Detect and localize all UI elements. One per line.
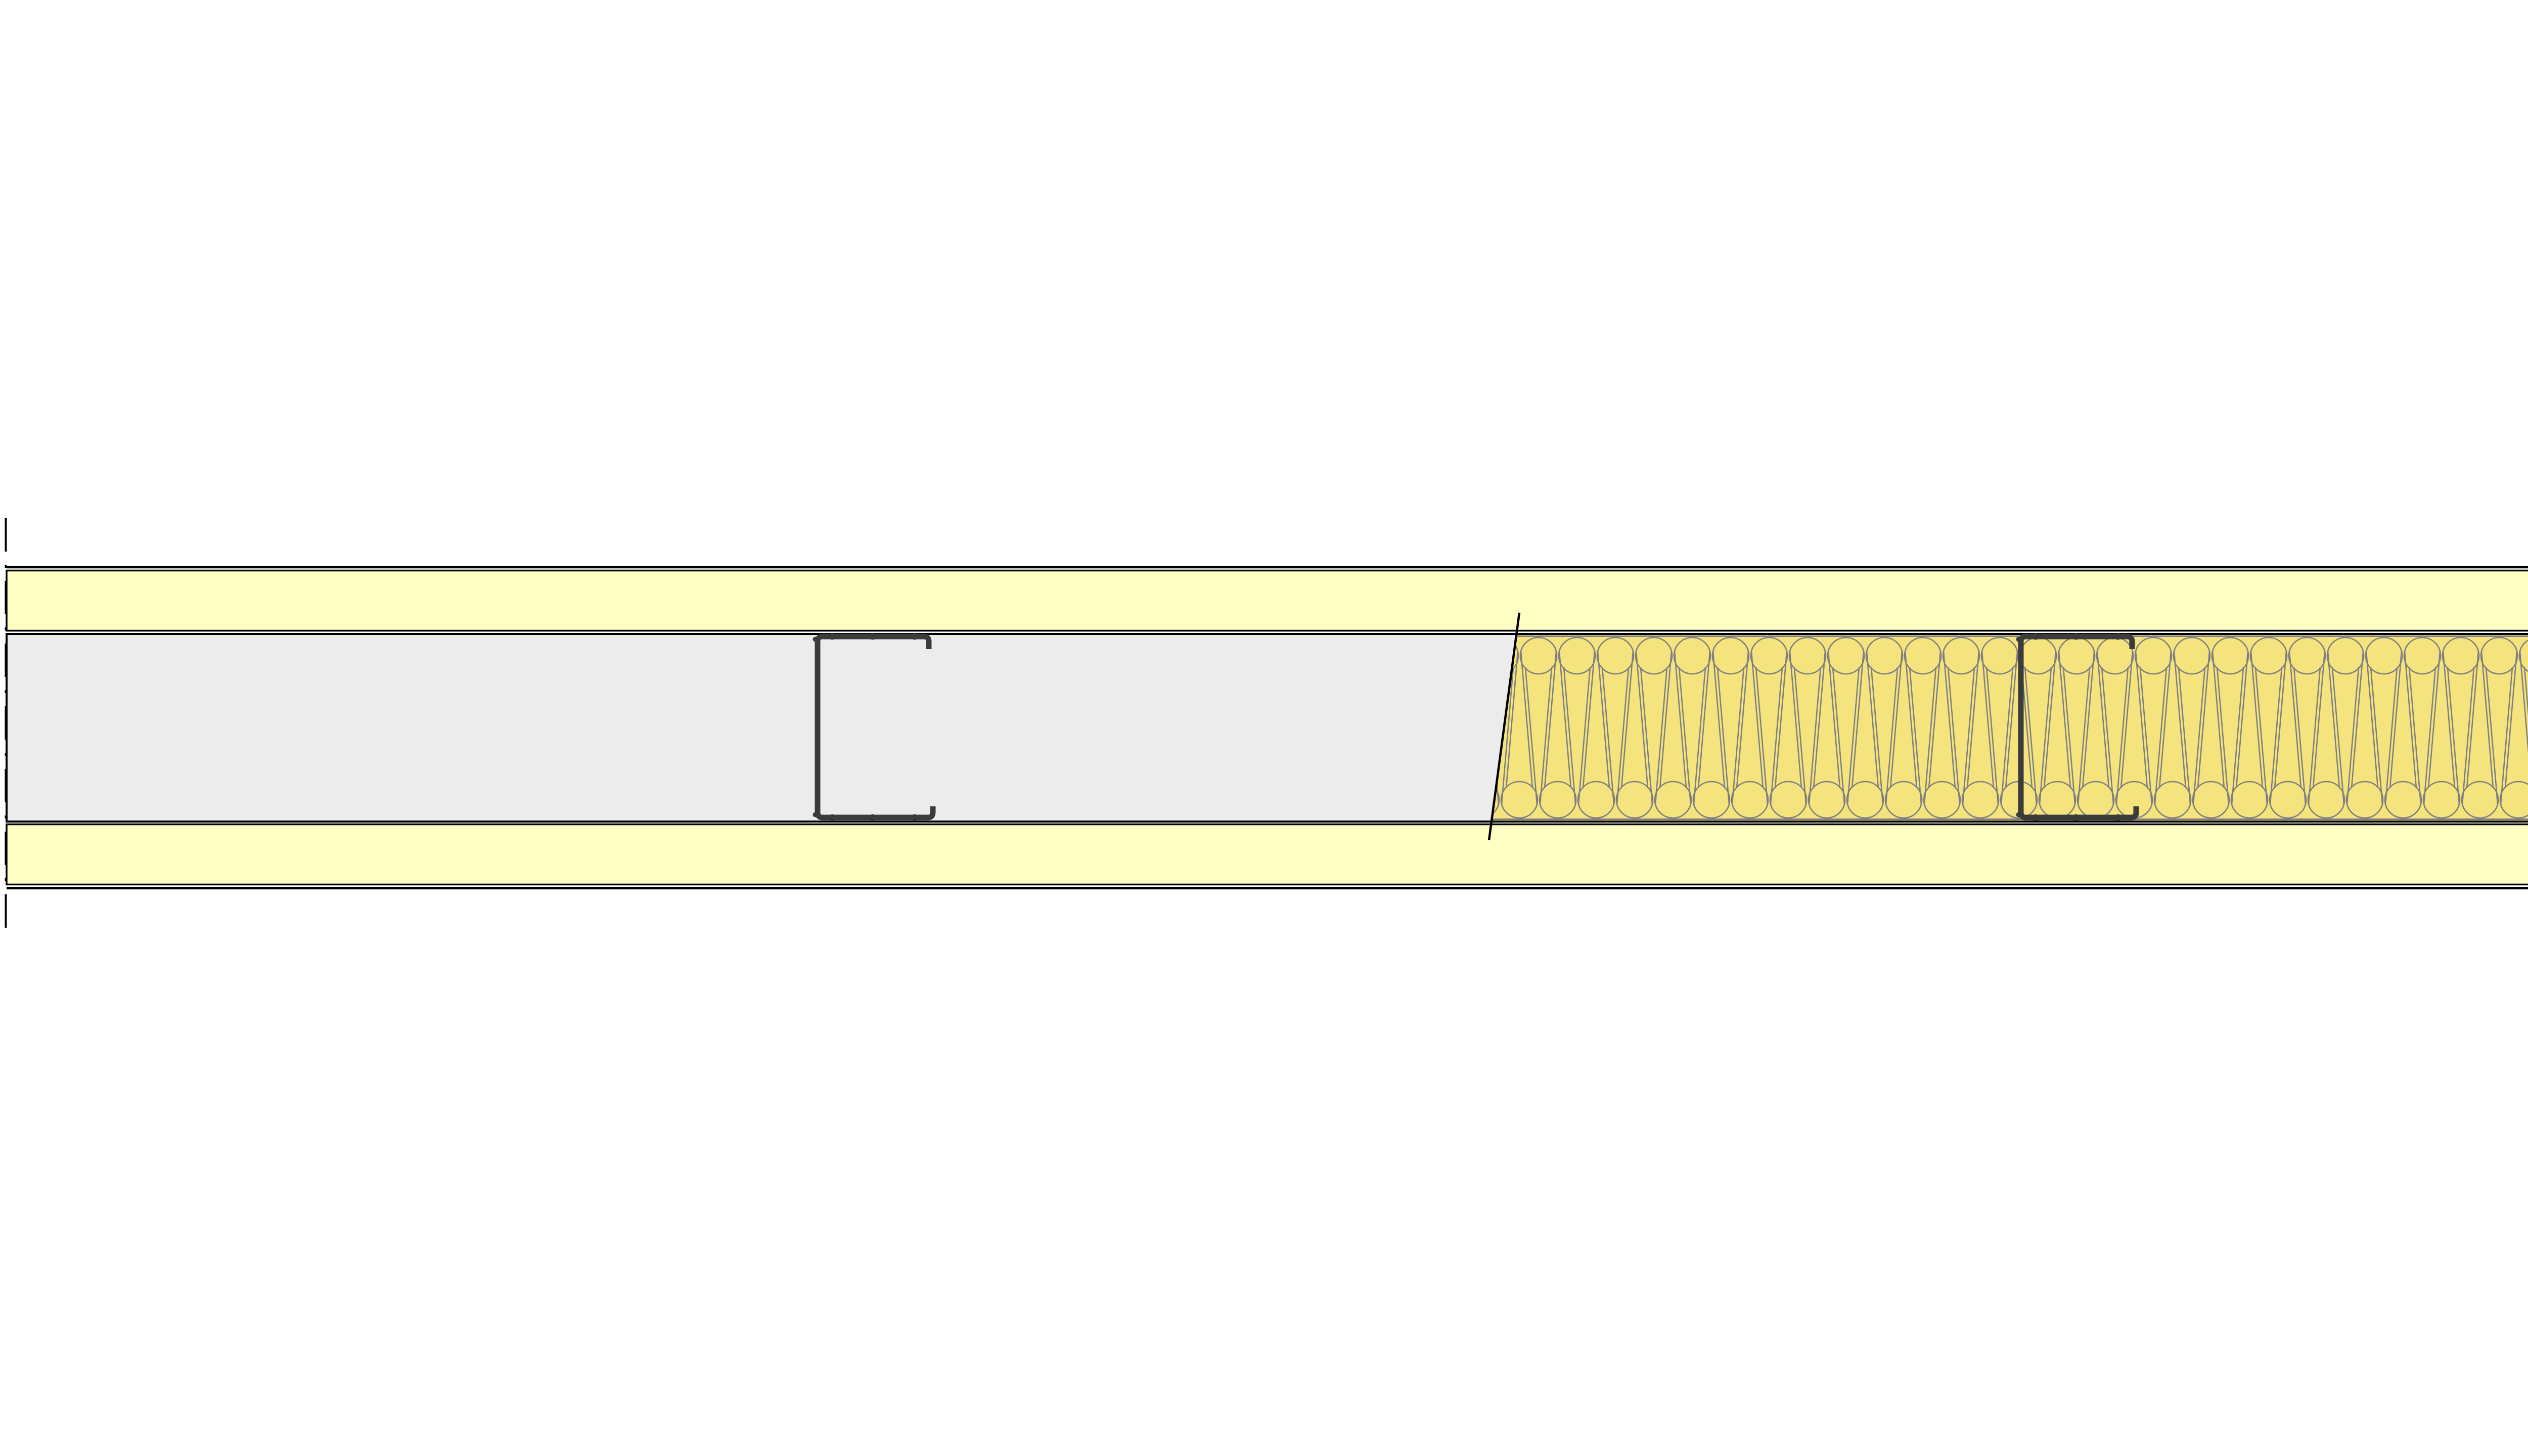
plasterboard-bottom (7, 825, 2528, 885)
insulation-loop-hatch (1492, 635, 2528, 821)
insulation-batt (1492, 635, 2528, 821)
plasterboard-top (7, 571, 2528, 631)
stud-knurl (2073, 633, 2080, 640)
stud-knurl (829, 814, 836, 821)
stud-corner-nub (2016, 637, 2021, 642)
wall-section-sheet (0, 0, 2528, 1456)
stud-knurl (2033, 633, 2039, 640)
wall-section-drawing (0, 0, 2528, 1456)
stud-knurl (870, 633, 876, 640)
stud-knurl (912, 633, 918, 640)
stud-knurl (2115, 633, 2121, 640)
stud-corner-nub (813, 637, 818, 642)
stud-corner-nub (813, 812, 818, 817)
stud-corner-nub (2016, 812, 2021, 817)
stud-knurl (912, 814, 918, 821)
stud-knurl (870, 814, 876, 821)
stud-knurl (2033, 814, 2039, 821)
stud-knurl (2073, 814, 2080, 821)
stud-knurl (829, 633, 836, 640)
stud-knurl (2115, 814, 2121, 821)
